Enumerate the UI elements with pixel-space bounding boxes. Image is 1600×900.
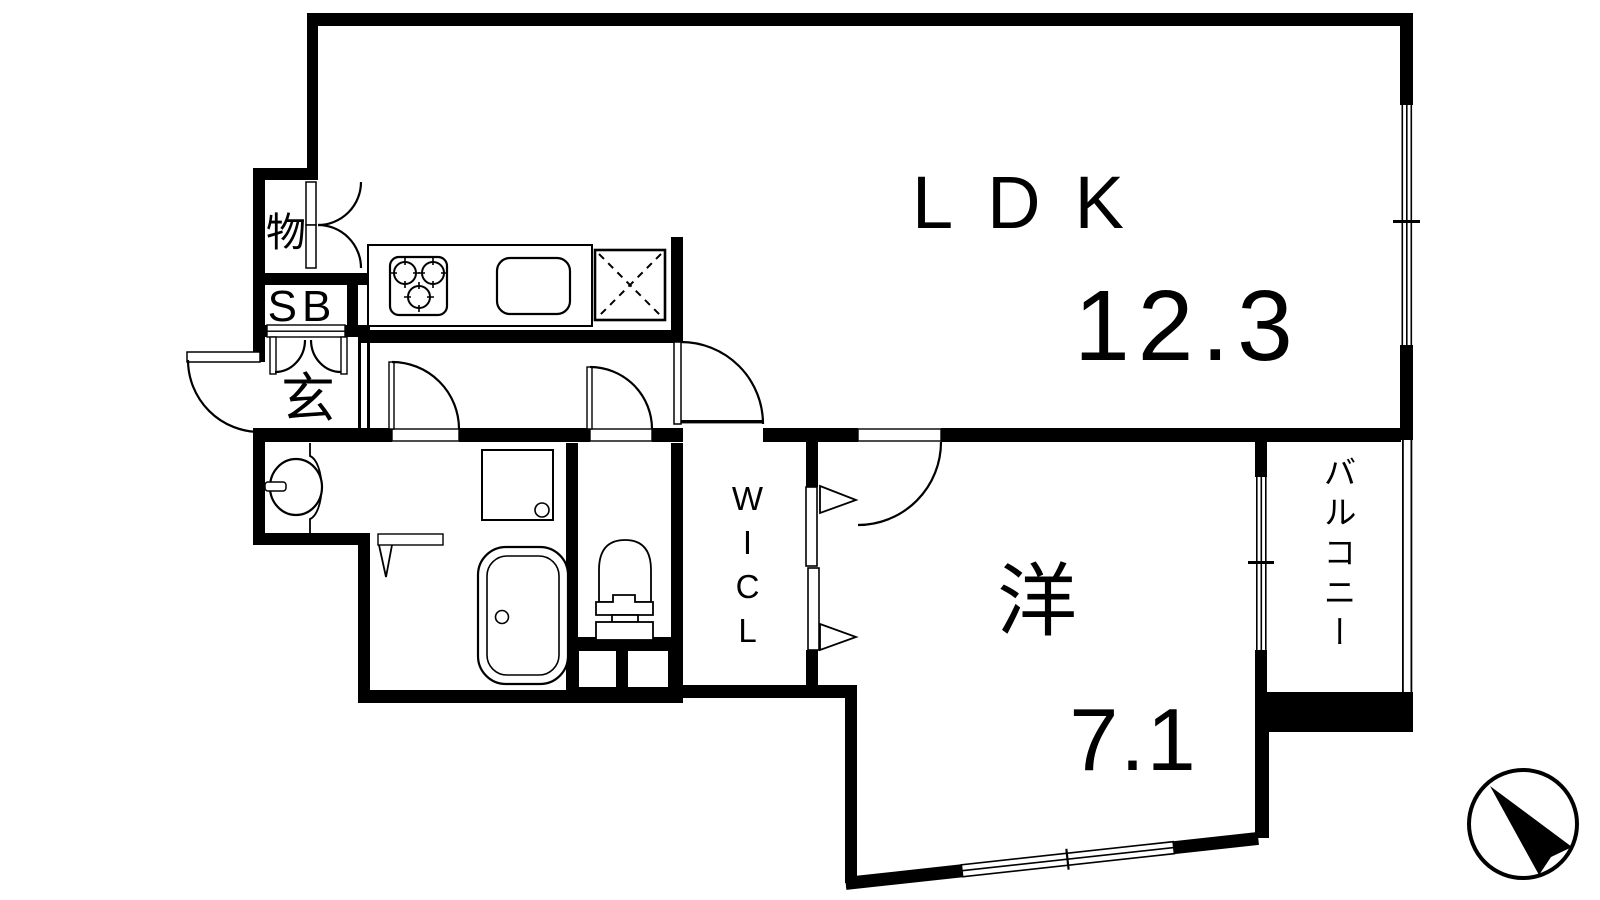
door-thresholds [378, 429, 941, 545]
washer-pan-icon [482, 450, 553, 520]
floor-plan-drawing [0, 0, 1600, 900]
room-label-shoebox: SB [258, 285, 346, 329]
wicl-fixtures [806, 486, 856, 650]
room-label-storage: 物 [266, 213, 306, 253]
toilet-door-icon [587, 367, 652, 429]
slanted-window-wall [845, 828, 1260, 894]
kitchen-sink-icon [497, 258, 570, 314]
kitchen-fixtures [368, 245, 665, 326]
bathroom-door-icon [379, 545, 392, 577]
floor-plan-page: LDK 12.3 洋 7.1 バルコニー WICL 玄 物 SB [0, 0, 1600, 900]
western-room-door-icon [858, 442, 941, 525]
slide-direction-arrow-icon [820, 624, 856, 650]
slide-direction-arrow-icon [820, 486, 856, 513]
room-label-western-room: 洋 [982, 562, 1092, 642]
ldk-door-icon [674, 342, 763, 424]
ldk-window-icon [1393, 105, 1420, 345]
room-label-entrance: 玄 [281, 372, 335, 426]
room-area-ldk: 12.3 [1040, 276, 1335, 376]
genkan-partition [358, 343, 370, 428]
room-label-ldk: LDK [868, 166, 1168, 240]
entrance-door-icon [187, 352, 260, 432]
refrigerator-space-icon [595, 250, 665, 320]
balcony-railing-icon [1401, 440, 1413, 692]
toilet-icon [596, 540, 653, 640]
room-label-wicl: WICL [724, 480, 764, 656]
room-area-western-room: 7.1 [1016, 696, 1251, 784]
faucet-icon [265, 482, 286, 491]
wicl-sliding-panel [806, 487, 817, 566]
bathroom-fixtures [478, 547, 568, 684]
washroom-fixtures [265, 443, 553, 533]
washroom-door-icon [389, 362, 459, 429]
ldk-door-sill [681, 420, 763, 423]
compass-north-icon [1469, 770, 1577, 878]
room-label-balcony: バルコニー [1312, 455, 1354, 655]
wicl-sliding-panel [808, 568, 819, 650]
bathtub-icon [478, 547, 568, 684]
storage-double-door-icon [306, 182, 361, 268]
balcony-sliding-door-icon [1248, 477, 1274, 650]
